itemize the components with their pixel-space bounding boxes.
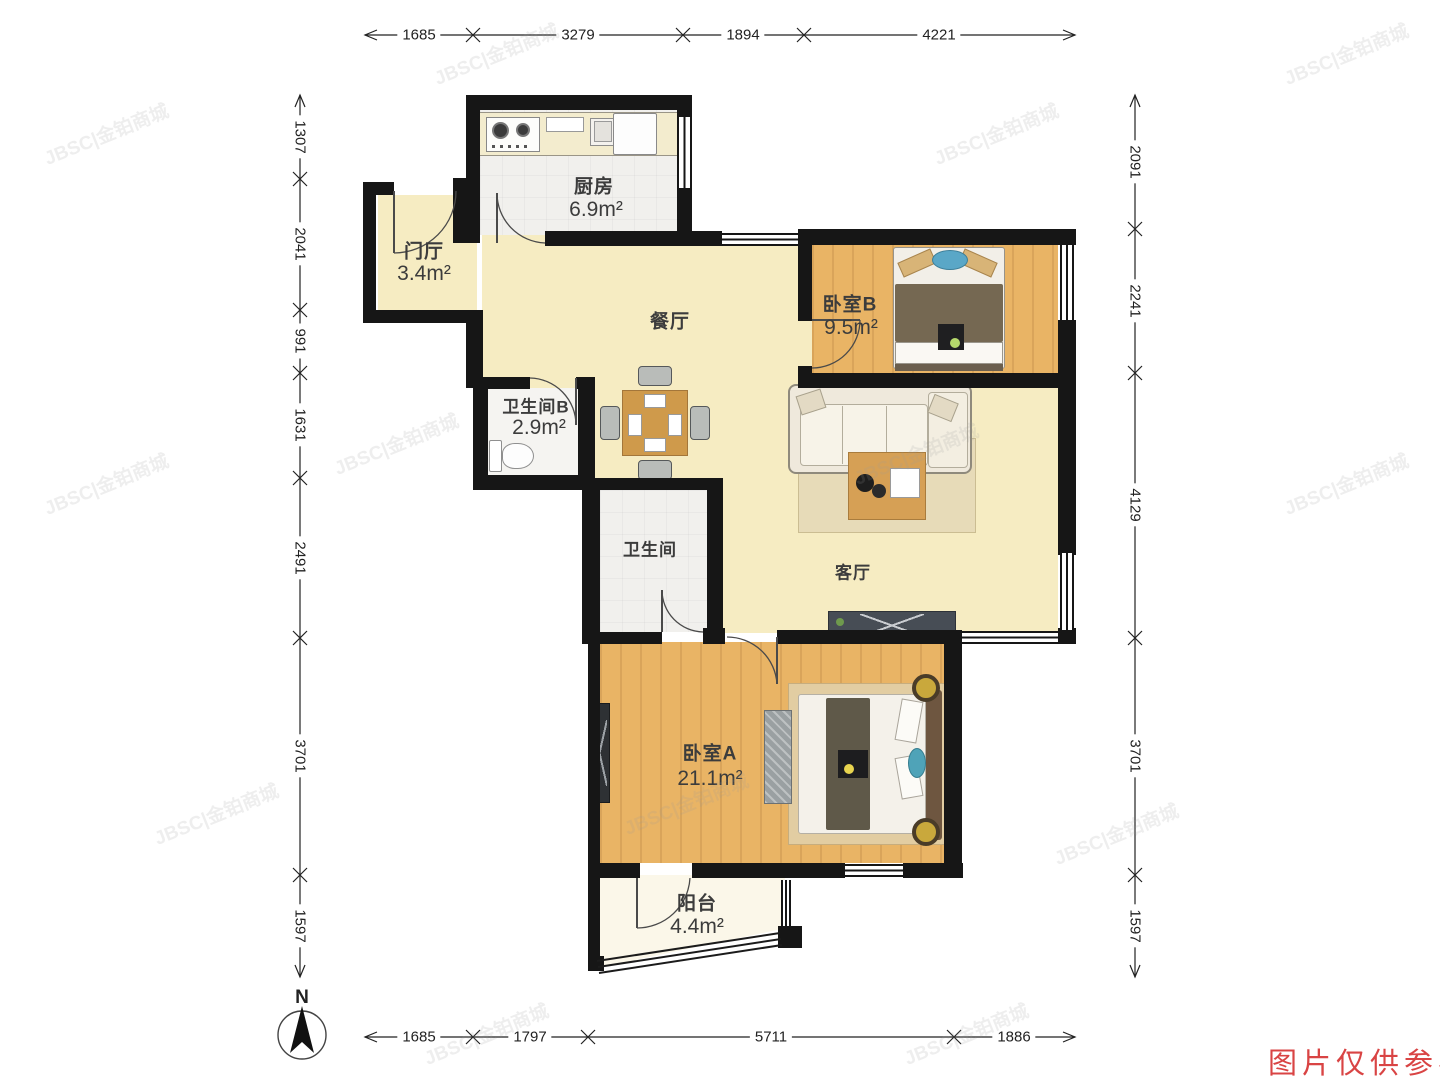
wall (582, 478, 600, 644)
dim-top-1: 1685 (397, 27, 440, 44)
brand-watermark: JBSC|金铂商城 (1050, 796, 1183, 870)
brand-watermark: JBSC|金铂商城 (1280, 16, 1413, 90)
bedroom-a-area: 21.1m² (677, 767, 742, 791)
wall (592, 632, 662, 644)
balcony-label: 阳台 (677, 889, 717, 916)
wall (677, 95, 692, 119)
bedroom-a-label: 卧室A (683, 739, 738, 766)
wall (798, 373, 1076, 388)
bedroom-b-door-patch (798, 321, 812, 366)
wall (578, 377, 595, 490)
wall (798, 366, 812, 378)
toilet-tank (489, 440, 502, 472)
wall (466, 95, 692, 110)
wall (903, 863, 963, 878)
fridge (613, 113, 657, 155)
bathroom-floor (600, 490, 707, 632)
bathroom-b-label: 卫生间B (502, 393, 569, 418)
dim-top-4: 4221 (917, 27, 960, 44)
brand-watermark: JBSC|金铂商城 (330, 406, 463, 480)
dining-chair-top (638, 366, 672, 386)
dim-right-4: 3701 (1127, 734, 1144, 777)
wall (588, 956, 604, 971)
dim-right-5: 1597 (1127, 904, 1144, 947)
dim-bottom-1: 1685 (397, 1029, 440, 1046)
brand-watermark: JBSC|金铂商城 (430, 16, 563, 90)
balcony-window-right (781, 880, 791, 926)
dim-right-2: 2241 (1127, 279, 1144, 322)
dining-chair-right (690, 406, 710, 440)
kettle-small (872, 484, 886, 498)
bed-a-throw (838, 750, 868, 778)
brand-watermark: JBSC|金铂商城 (150, 776, 283, 850)
dimension-chain-right (1128, 95, 1142, 977)
wall (582, 478, 723, 490)
dim-bottom-4: 1886 (992, 1029, 1035, 1046)
living-window-right (1060, 553, 1074, 630)
kitchen-label: 厨房 (574, 172, 614, 199)
bedroom-b-area: 9.5m² (824, 316, 878, 340)
living-label: 客厅 (835, 559, 871, 584)
dim-top-2: 3279 (556, 27, 599, 44)
wall (944, 630, 962, 877)
bed-a-knob-top (912, 674, 940, 702)
dim-right-3: 4129 (1127, 483, 1144, 526)
bed-b-throw-dot (950, 338, 960, 348)
stove-burner-left (492, 122, 509, 139)
wall (798, 229, 1076, 245)
bed-a-cushion (908, 748, 926, 778)
dining-chair-bottom (638, 460, 672, 480)
dining-label: 餐厅 (650, 307, 690, 334)
north-label: N (295, 987, 309, 1009)
dimension-chain-bottom (365, 1030, 1075, 1044)
dining-chair-left (600, 406, 620, 440)
bed-b-foot-rail (895, 364, 1003, 371)
toilet-bowl (502, 443, 534, 469)
bench (764, 710, 792, 804)
brand-watermark: JBSC|金铂商城 (40, 96, 173, 170)
wall (677, 231, 722, 246)
wall (777, 630, 952, 644)
wall (473, 377, 488, 490)
stove-burner-right (516, 123, 530, 137)
place-setting-left (628, 414, 642, 436)
dimension-chain-top (365, 28, 1075, 42)
wall (473, 475, 595, 490)
wall (677, 188, 692, 233)
brand-watermark: JBSC|金铂商城 (1280, 446, 1413, 520)
balcony-area: 4.4m² (670, 915, 724, 939)
sofa-seat-divider (842, 406, 843, 464)
wall (692, 863, 845, 878)
place-setting-right (668, 414, 682, 436)
dining-window (722, 233, 798, 246)
living-window-bottom (962, 631, 1058, 644)
kitchen-window (677, 117, 692, 188)
bed-b-cushion (932, 250, 968, 270)
hall-area: 3.4m² (397, 262, 451, 286)
bed-a-throw-dot (844, 764, 854, 774)
kitchen-area: 6.9m² (569, 198, 623, 222)
dim-left-7: 1597 (292, 904, 309, 947)
hall-label: 门厅 (404, 237, 444, 264)
wall (1058, 320, 1076, 375)
wall (455, 182, 468, 195)
bedroom-a-window (845, 864, 903, 877)
tv-stand-plant (836, 618, 844, 626)
dim-left-2: 2041 (292, 222, 309, 265)
dim-left-4: 1631 (292, 403, 309, 446)
stove-knobs (492, 145, 528, 148)
wall (778, 926, 802, 948)
dim-bottom-2: 1797 (508, 1029, 551, 1046)
tray (890, 468, 920, 498)
wall (707, 478, 723, 644)
north-arrow (278, 1006, 326, 1059)
dim-top-3: 1894 (721, 27, 764, 44)
wall (1058, 628, 1076, 644)
floorplan-canvas: 厨房 6.9m² 门厅 3.4m² 餐厅 卧室B 9.5m² 卫生间B 2.9m… (0, 0, 1440, 1080)
place-setting-bottom (644, 438, 666, 452)
bedroom-b-label: 卧室B (823, 290, 878, 317)
dim-bottom-3: 5711 (750, 1029, 792, 1046)
brand-watermark: JBSC|金铂商城 (40, 446, 173, 520)
bathroom-b-area: 2.9m² (512, 416, 566, 440)
dim-right-1: 2091 (1127, 140, 1144, 183)
bathroom-label: 卫生间 (623, 536, 677, 561)
wall (1058, 388, 1076, 555)
dim-left-5: 2491 (292, 536, 309, 579)
dim-left-1: 1307 (292, 115, 309, 158)
dim-left-6: 3701 (292, 734, 309, 777)
bed-a-knob-bottom (912, 818, 940, 846)
wall (588, 644, 600, 865)
place-setting-top (644, 394, 666, 408)
bedroom-b-window (1060, 245, 1074, 320)
wall (466, 95, 480, 183)
dim-left-3: 991 (292, 323, 309, 358)
wall (703, 628, 725, 644)
brand-watermark: JBSC|金铂商城 (930, 96, 1063, 170)
reference-notice: 图片仅供参考 (1268, 1040, 1440, 1080)
sink-basin-left (594, 121, 612, 142)
wall (363, 182, 376, 323)
kitchen-panel (546, 117, 584, 132)
wall (545, 231, 679, 246)
wall (363, 310, 483, 323)
